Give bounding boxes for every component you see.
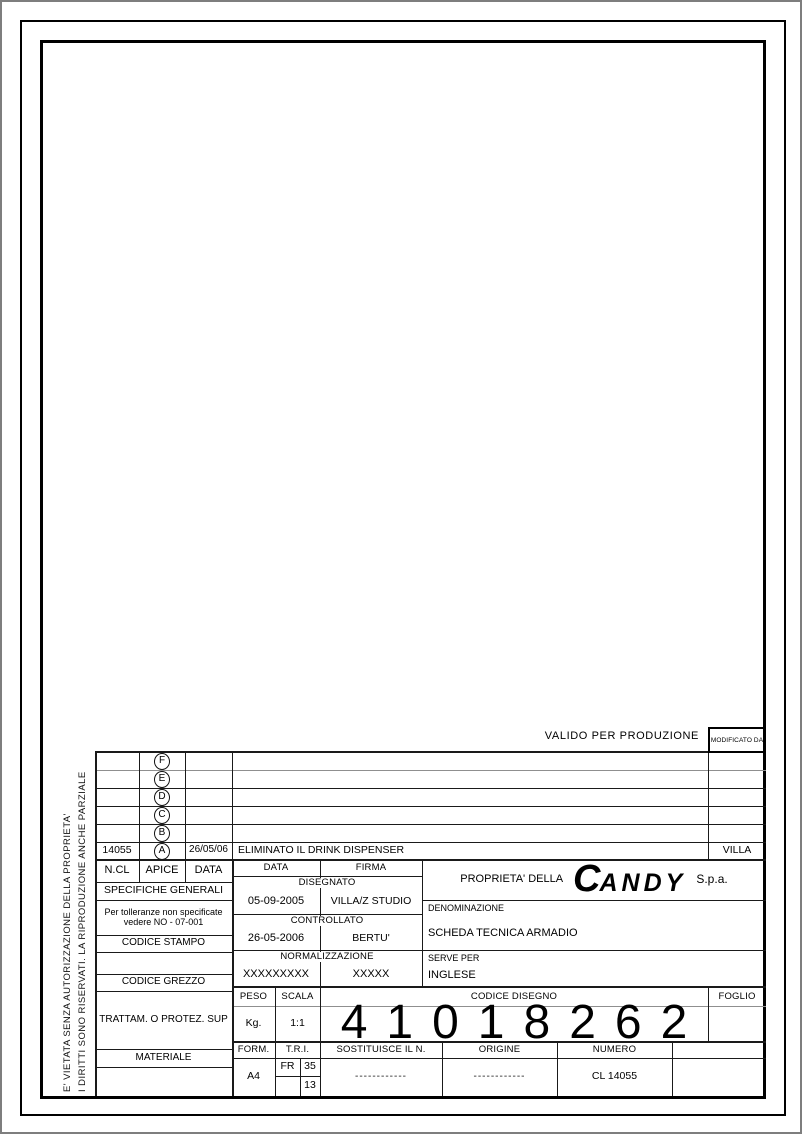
- numero-header: NUMERO: [557, 1042, 672, 1058]
- controllato-row-label: CONTROLLATO: [232, 914, 422, 928]
- grid-line: [95, 1067, 232, 1068]
- codice-grezzo-label: CODICE GREZZO: [95, 974, 232, 991]
- grid-line: [95, 952, 232, 953]
- tri-value-fr: FR: [275, 1058, 300, 1076]
- controllato-date: 26-05-2006: [232, 928, 320, 950]
- proprieta-della-label: PROPRIETA' DELLA: [460, 874, 563, 886]
- grid-line: [95, 824, 766, 825]
- trattamento-label: TRATTAM. O PROTEZ. SUP: [95, 991, 232, 1049]
- grid-line: [95, 788, 766, 789]
- grid-line: [95, 751, 766, 753]
- controllato-signature: BERTU': [320, 928, 422, 950]
- specifiche-generali-title: SPECIFICHE GENERALI: [95, 882, 232, 900]
- revision-apice-e: E: [154, 771, 170, 788]
- valido-per-produzione-label: VALIDO PER PRODUZIONE: [442, 729, 699, 744]
- revision-header-ncl: N.CL: [95, 859, 139, 882]
- normalizzazione-label: NORMALIZZAZIONE: [275, 952, 378, 962]
- sostituisce-header: SOSTITUISCE IL N.: [320, 1042, 442, 1058]
- disegnato-row-label: DISEGNATO: [232, 876, 422, 890]
- revision-a-modified-by: VILLA: [708, 842, 766, 859]
- materiale-label: MATERIALE: [95, 1049, 232, 1067]
- origine-header: ORIGINE: [442, 1042, 557, 1058]
- form-value: A4: [232, 1058, 275, 1096]
- drawing-sheet: VALIDO PER PRODUZIONE MODIFICATO DA F E …: [0, 0, 802, 1134]
- normalizzazione-date: XXXXXXXXX: [232, 964, 320, 986]
- revision-apice-b: B: [154, 825, 170, 842]
- revision-apice-d: D: [154, 789, 170, 806]
- origine-value: ------------: [442, 1058, 557, 1096]
- modificato-da-box: MODIFICATO DA: [708, 727, 766, 753]
- normalizzazione-row-label: NORMALIZZAZIONE: [232, 950, 422, 964]
- revision-header-apice: APICE: [139, 859, 185, 882]
- tolerance-note-line2: vedere NO - 07-001: [124, 918, 204, 927]
- spa-suffix: S.p.a.: [696, 873, 727, 886]
- codice-disegno-value: 41018262: [322, 998, 707, 1048]
- ownership-row: PROPRIETA' DELLA C ANDY S.p.a.: [422, 859, 766, 900]
- tri-value-13: 13: [300, 1076, 320, 1096]
- grid-line: [422, 900, 766, 901]
- scala-header: SCALA: [275, 987, 320, 1006]
- peso-value: Kg.: [232, 1006, 275, 1041]
- revision-apice-c: C: [154, 807, 170, 824]
- controllato-label: CONTROLLATO: [286, 916, 369, 926]
- disegnato-label: DISEGNATO: [294, 878, 361, 888]
- serve-per-label: SERVE PER: [422, 953, 702, 965]
- sostituisce-value: ------------: [320, 1058, 442, 1096]
- codice-disegno-cell: 41018262: [320, 1005, 708, 1041]
- grid-line: [95, 770, 766, 771]
- foglio-value: [708, 1006, 766, 1041]
- candy-logo: C ANDY: [573, 862, 686, 896]
- serve-per-value: INGLESE: [422, 967, 702, 985]
- candy-logo-text: ANDY: [600, 870, 687, 896]
- origine-dashes: ------------: [474, 1072, 526, 1083]
- sostituisce-dashes: ------------: [355, 1072, 407, 1083]
- modificato-da-label: MODIFICATO DA: [711, 737, 763, 744]
- revision-apice-a: A: [154, 843, 170, 860]
- denominazione-value: SCHEDA TECNICA ARMADIO: [422, 925, 762, 943]
- revision-a-description: ELIMINATO IL DRINK DISPENSER: [232, 842, 708, 859]
- denominazione-label: DENOMINAZIONE: [422, 903, 702, 915]
- revision-a-date: 26/05/06: [185, 842, 232, 859]
- disegnato-date: 05-09-2005: [232, 890, 320, 914]
- signature-data-header: DATA: [232, 859, 320, 876]
- revision-a-ncl: 14055: [95, 842, 139, 859]
- grid-line: [422, 950, 766, 951]
- tri-header: T.R.I.: [275, 1042, 320, 1058]
- grid-line: [672, 1041, 673, 1096]
- codice-stampo-label: CODICE STAMPO: [95, 935, 232, 952]
- signature-firma-header: FIRMA: [320, 859, 422, 876]
- copyright-notice-line1: I DIRITTI SONO RISERVATI. LA RIPRODUZION…: [77, 771, 88, 1092]
- foglio-header: FOGLIO: [708, 987, 766, 1006]
- copyright-notice-line2: E' VIETATA SENZA AUTORIZZAZIONE DELLA PR…: [62, 813, 73, 1092]
- disegnato-signature: VILLA/Z STUDIO: [320, 890, 422, 914]
- normalizzazione-signature: XXXXX: [320, 964, 422, 986]
- grid-line: [95, 806, 766, 807]
- peso-header: PESO: [232, 987, 275, 1006]
- tolerance-note: Per tolleranze non specificate vedere NO…: [95, 900, 232, 935]
- scala-value: 1:1: [275, 1006, 320, 1041]
- form-header: FORM.: [232, 1042, 275, 1058]
- candy-logo-initial: C: [573, 862, 598, 896]
- tri-value-35: 35: [300, 1058, 320, 1076]
- revision-header-data: DATA: [185, 859, 232, 882]
- numero-value: CL 14055: [557, 1058, 672, 1096]
- revision-apice-f: F: [154, 753, 170, 770]
